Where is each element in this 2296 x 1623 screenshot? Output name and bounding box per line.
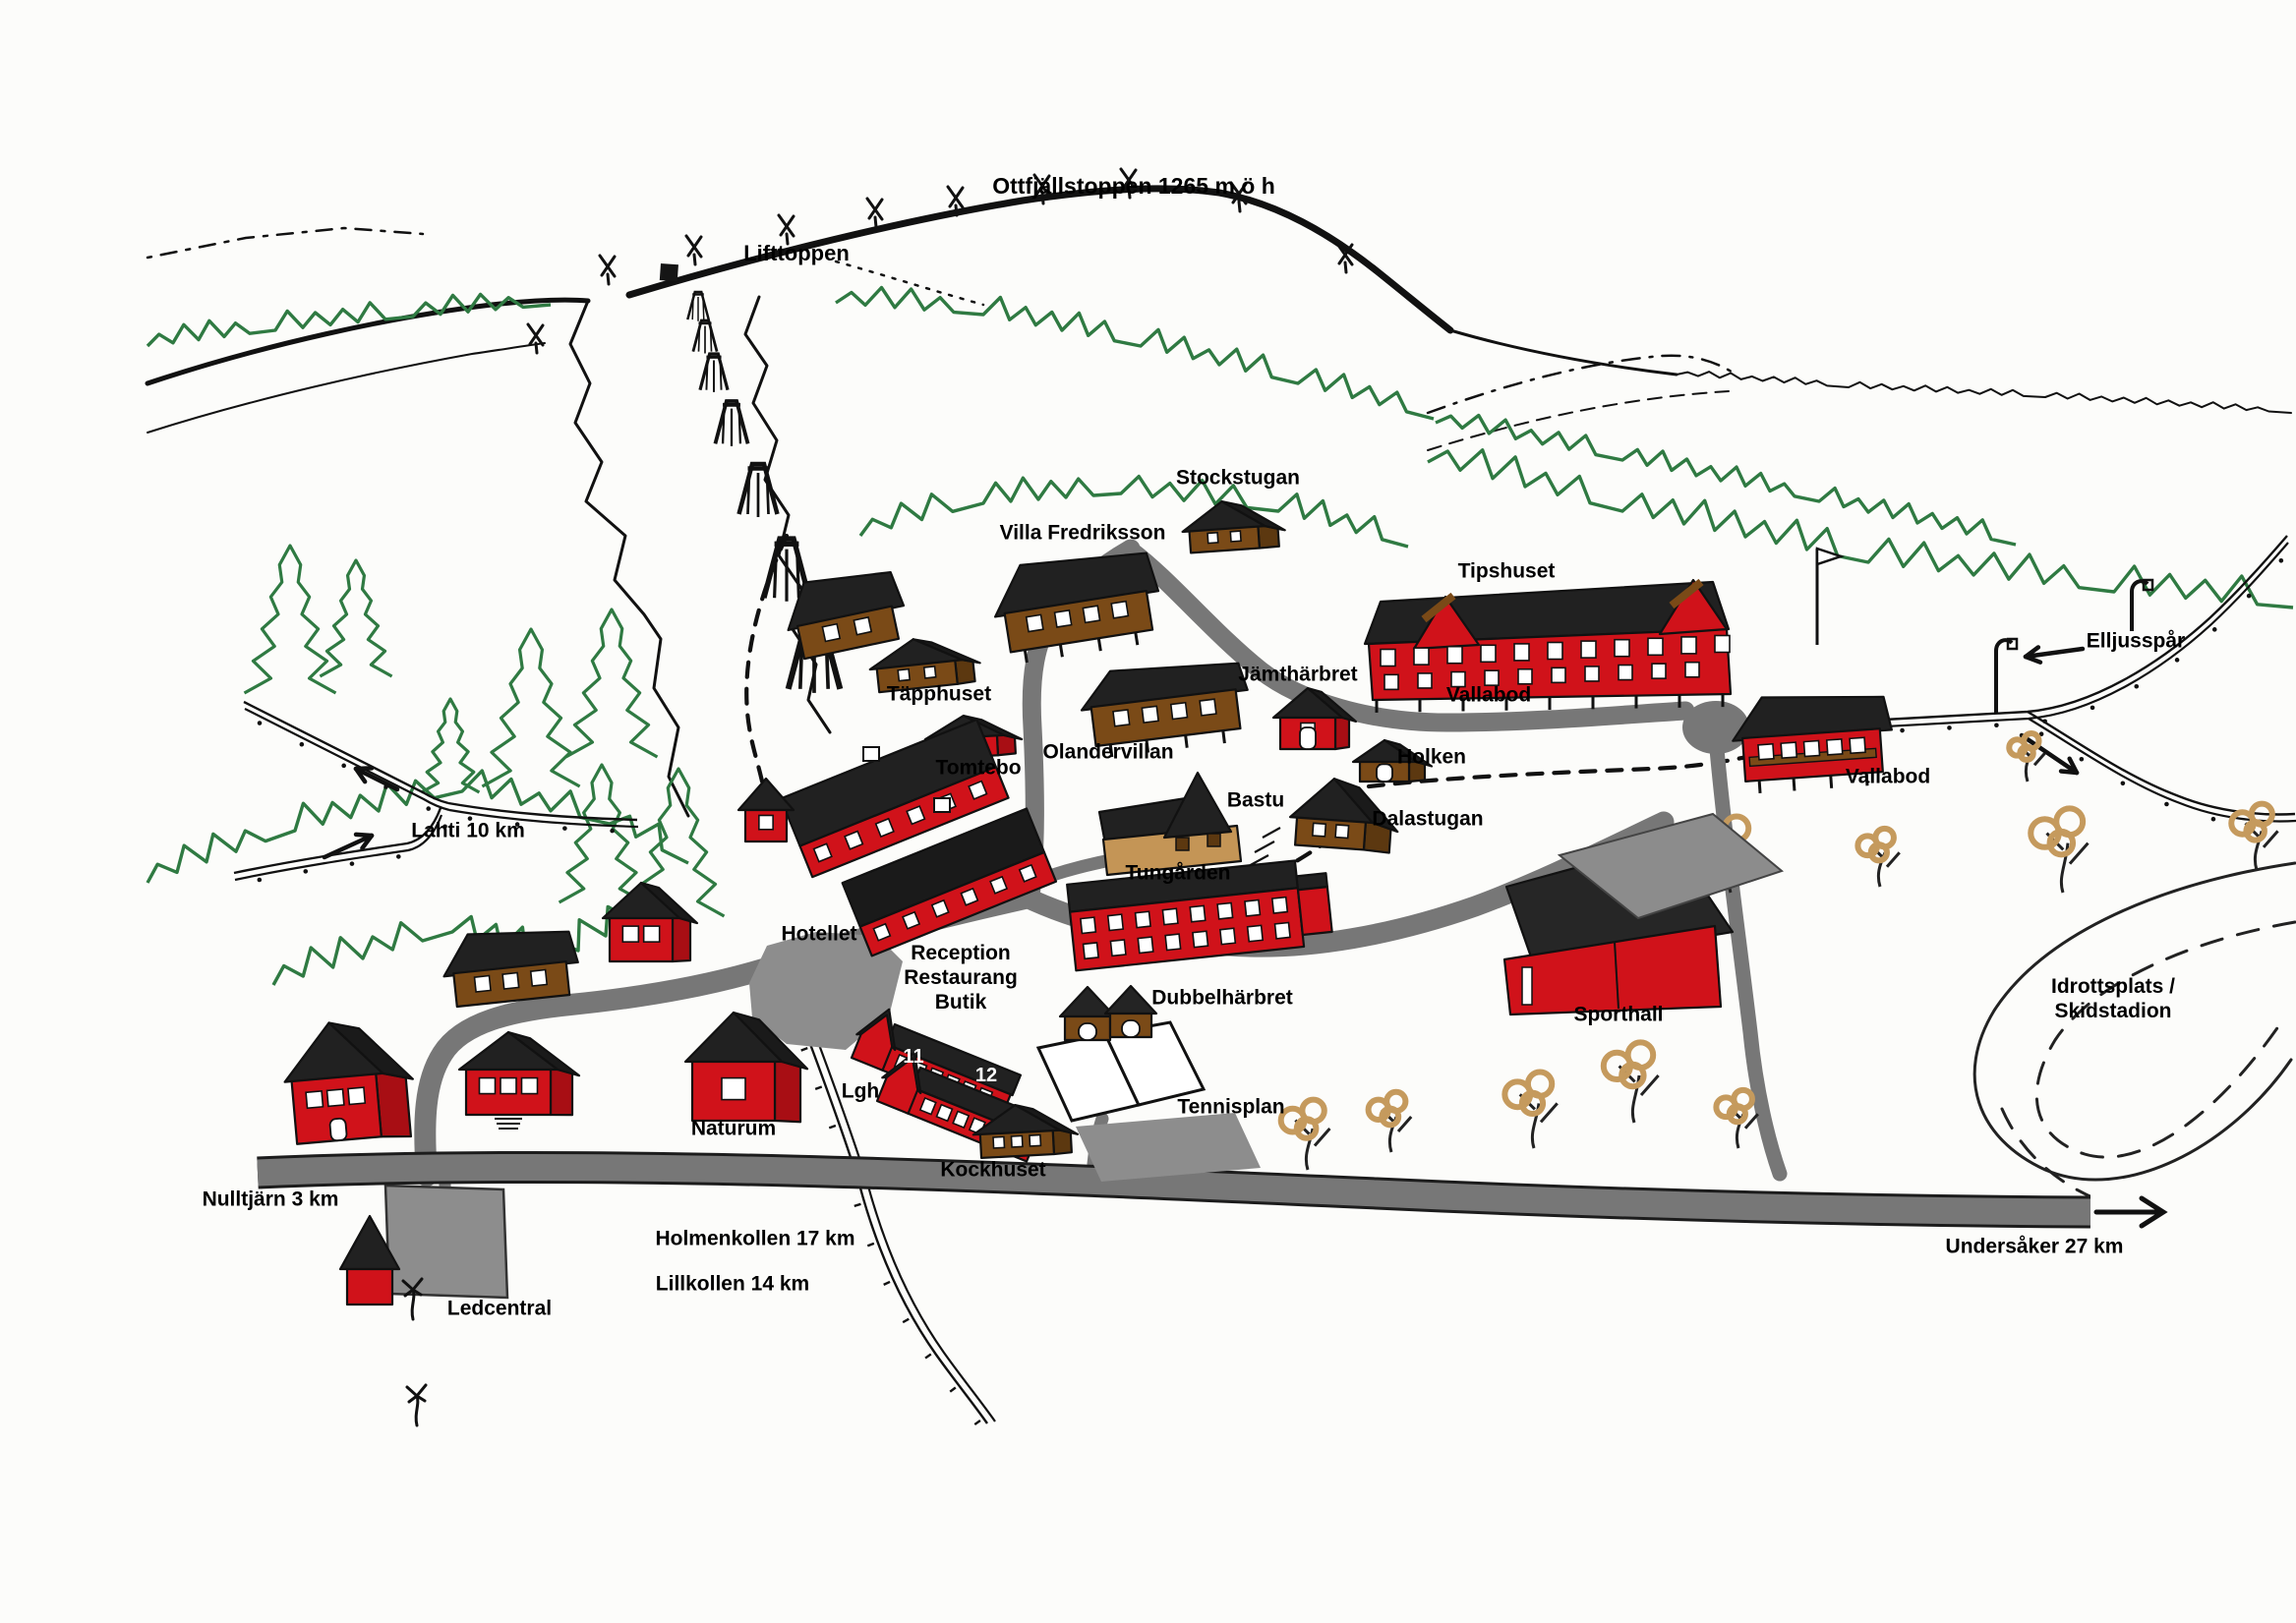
birch-trees <box>1281 733 2278 1170</box>
ridge-right <box>1450 330 1677 375</box>
house-west-brown-building <box>440 923 581 1008</box>
holken-label: Holken <box>1397 744 1466 769</box>
trail-marker-icon <box>407 1385 426 1425</box>
ottfjallstoppen-label: Ottfjällstoppen 1265 m ö h <box>992 173 1275 201</box>
road-4 <box>1717 749 1780 1174</box>
hotellet-annex-building <box>738 779 794 841</box>
tapphuset-label: Täpphuset <box>887 681 991 706</box>
spruce <box>245 546 336 693</box>
holmenkollen-label: Holmenkollen 17 km <box>655 1226 854 1250</box>
tungarden-label: Tungården <box>1126 860 1231 885</box>
road-turnaround <box>1682 701 1749 754</box>
treeline-4 <box>1428 450 2293 608</box>
birch <box>1281 1100 1330 1170</box>
dubbelharbret-label: Dubbelhärbret <box>1151 985 1293 1010</box>
wind-cross-icon <box>867 199 882 227</box>
resort-map: Ottfjällstoppen 1265 m ö hLifttoppenStoc… <box>0 0 2296 1623</box>
lgh-label: Lgh <box>842 1078 879 1103</box>
ski-track-4 <box>2028 712 2295 814</box>
olandervillan-label: Olandervillan <box>1042 739 1173 764</box>
reception-label: Reception Restaurang Butik <box>904 941 1018 1015</box>
wind-cross-icon <box>528 324 543 353</box>
jamtharbret-label: Jämthärbret <box>1238 662 1357 686</box>
contour-mid-a <box>1428 356 1735 413</box>
vallabod-tipshuset-label: Vallabod <box>1446 682 1531 707</box>
vallabod-east-label: Vallabod <box>1846 764 1930 788</box>
stockstugan-label: Stockstugan <box>1176 465 1300 490</box>
nr-11-label: 11 <box>903 1045 923 1069</box>
spruce <box>320 560 391 676</box>
naturum-label: Naturum <box>691 1116 776 1140</box>
birch <box>1604 1042 1659 1123</box>
bastu-building <box>1099 773 1241 875</box>
birch <box>2031 808 2088 893</box>
nulltjarn-label: Nulltjärn 3 km <box>203 1187 339 1211</box>
hotellet-label: Hotellet <box>781 921 856 946</box>
spruce <box>482 629 579 786</box>
jamtharbret-building <box>1273 688 1356 749</box>
stockstugan-building <box>1181 497 1286 553</box>
ski-track-0 <box>244 702 448 803</box>
tipshuset-building <box>1365 580 1731 713</box>
birch <box>1857 829 1899 887</box>
wind-cross-icon <box>600 256 615 284</box>
spruce <box>559 765 645 902</box>
map-drawing <box>0 0 2296 1623</box>
tipshuset-label: Tipshuset <box>1458 558 1556 583</box>
villa-fredriksson-label: Villa Fredriksson <box>1000 520 1166 545</box>
hatch-mark <box>1263 828 1280 838</box>
lifttoppen-label: Lifttoppen <box>743 241 850 266</box>
ridge-left <box>147 300 588 383</box>
sporthall-label: Sporthall <box>1573 1002 1663 1026</box>
kockhuset-label: Kockhuset <box>940 1157 1045 1182</box>
tennisplan-label: Tennisplan <box>1177 1094 1284 1119</box>
birch <box>1504 1072 1557 1148</box>
house-west-red-building <box>603 883 697 961</box>
birch <box>1369 1092 1412 1152</box>
nr-12-label: 12 <box>975 1064 997 1087</box>
lahti-label: Lahti 10 km <box>411 818 525 842</box>
house-center-red-building <box>459 1032 579 1129</box>
treeline-1 <box>836 288 1434 420</box>
wind-cross-icon <box>686 236 701 264</box>
lift-house-icon <box>660 263 678 281</box>
dubbelharbret-building <box>1060 986 1156 1040</box>
contour-left-a <box>147 228 423 258</box>
wind-cross-icon <box>779 215 794 244</box>
spruce-trees <box>245 546 725 916</box>
spruce <box>422 699 480 792</box>
villa-fredriksson-building <box>988 545 1166 667</box>
stadium-loop-1 <box>2036 922 2295 1157</box>
undersaker-label: Undersåker 27 km <box>1946 1234 2124 1258</box>
bastu-label: Bastu <box>1227 787 1284 812</box>
lamp-post-icon <box>1996 640 2012 714</box>
spruce <box>566 609 658 757</box>
ledcentral-label: Ledcentral <box>447 1296 552 1320</box>
ski-track-3 <box>1831 536 2287 723</box>
hatch-mark <box>1255 841 1274 852</box>
idrottsplats-label: Idrottsplats / Skidstadion <box>2022 974 2205 1023</box>
ridge-right-jagged <box>1677 372 2291 413</box>
treeline-0 <box>147 294 551 346</box>
lillkollen-label: Lillkollen 14 km <box>656 1271 809 1296</box>
dalastugan-label: Dalastugan <box>1372 806 1483 831</box>
contour-left-b <box>147 343 545 433</box>
house-left-red-building <box>280 1015 418 1146</box>
birch <box>1716 1090 1757 1148</box>
tomtebo-label: Tomtebo <box>935 755 1021 780</box>
elljusspar-label: Elljusspår <box>2087 628 2185 653</box>
